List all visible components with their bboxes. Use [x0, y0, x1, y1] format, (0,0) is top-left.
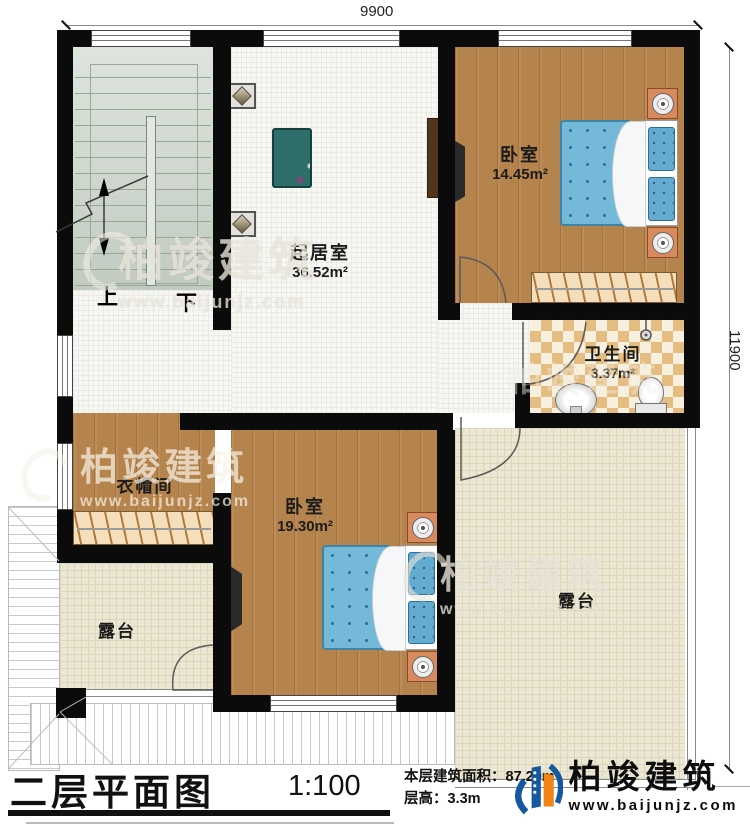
terrace-right-railing: [687, 428, 696, 790]
floor-plan-page: 上 下: [0, 0, 750, 830]
room-area: 3.37m²: [591, 365, 635, 381]
bathroom-label: 卫生间 3.37m²: [558, 345, 668, 384]
floor-height-value: 3.3m: [448, 791, 481, 807]
room-name: 卧室: [285, 497, 325, 517]
wall: [438, 303, 460, 320]
bed1-blanket: [612, 121, 646, 227]
wall: [213, 493, 231, 695]
bedroom1-label: 卧室 14.45m²: [465, 145, 575, 185]
dimension-line-right: [729, 48, 730, 770]
window: [57, 335, 73, 397]
bedroom1-wardrobe: [531, 272, 677, 303]
nightstand: [407, 651, 438, 682]
wall: [213, 47, 231, 330]
nightstand: [647, 88, 678, 119]
drawing-title: 二层平面图: [10, 762, 215, 816]
bed1-pillow: [648, 127, 675, 171]
drawing-scale: 1:100: [288, 770, 361, 803]
title-underline-thin: [26, 822, 394, 824]
coffee-table: [272, 128, 312, 188]
wall: [180, 413, 453, 430]
dimension-line-top: [65, 25, 700, 26]
company-logo: 柏竣建筑 www.baijunjz.com: [515, 760, 738, 818]
wall: [684, 30, 700, 428]
room-name: 衣帽间: [117, 477, 174, 496]
nightstand: [407, 512, 438, 543]
living-room-floor: [231, 47, 438, 413]
lamp-icon: [232, 214, 252, 234]
lamp-icon: [652, 232, 674, 254]
window: [91, 30, 191, 47]
room-name: 露台: [558, 592, 596, 611]
eave-hatch-bottom: [30, 703, 455, 765]
room-name: 卫生间: [585, 345, 642, 364]
area-label: 本层建筑面积：: [404, 769, 506, 785]
tv-bedroom2: [230, 566, 242, 632]
bed2-pillow: [408, 552, 435, 595]
title-underline: [8, 810, 390, 816]
stair-outline: [90, 64, 198, 284]
lamp-icon: [412, 656, 434, 678]
stair-up-label: 上: [97, 281, 118, 311]
nightstand: [647, 227, 678, 258]
room-area: 36.52m²: [292, 264, 348, 281]
side-table-lamp: [228, 211, 256, 237]
title-block: 二层平面图 1:100 本层建筑面积：87.20m² 层高：3.3m 柏竣建筑 …: [0, 758, 750, 830]
lamp-icon: [652, 93, 674, 115]
wall: [517, 413, 700, 428]
room-name: 露台: [98, 622, 136, 641]
terrace-right-label: 露台: [537, 592, 617, 612]
company-website: www.baijunjz.com: [569, 797, 738, 814]
stair-down-label: 下: [176, 287, 197, 317]
room-area: 19.30m²: [277, 518, 333, 535]
terrace-left-railing: [86, 689, 215, 697]
wall: [512, 303, 700, 320]
company-logo-text: 柏竣建筑 www.baijunjz.com: [569, 760, 738, 814]
company-logo-icon: [515, 760, 563, 818]
window: [270, 695, 397, 712]
dimension-height: 11900: [726, 330, 743, 371]
room-area: 14.45m²: [492, 166, 548, 183]
stair-handrail: [146, 116, 156, 286]
room-name: 起居室: [290, 243, 350, 263]
bedroom2-label: 卧室 19.30m²: [250, 497, 360, 537]
bed2-pillow: [408, 601, 435, 644]
dimension-width: 9900: [360, 3, 393, 20]
wall: [57, 545, 215, 563]
window: [263, 30, 400, 47]
cloakroom-wardrobe: [73, 511, 215, 545]
room-name: 卧室: [500, 145, 540, 165]
floor-height-label: 层高：: [404, 791, 448, 807]
window: [57, 443, 73, 510]
wall: [438, 47, 455, 320]
lamp-icon: [232, 86, 252, 106]
window: [498, 30, 632, 47]
bed1-pillow: [648, 177, 675, 221]
side-table-lamp: [228, 83, 256, 109]
wall: [437, 430, 455, 695]
bed2-blanket: [372, 546, 406, 651]
living-room-label: 起居室 36.52m²: [255, 243, 385, 283]
company-name: 柏竣建筑: [569, 760, 738, 793]
cloakroom-label: 衣帽间: [100, 477, 190, 497]
terrace-left-label: 露台: [85, 622, 149, 642]
terrace-post: [56, 688, 86, 718]
lamp-icon: [412, 517, 434, 539]
